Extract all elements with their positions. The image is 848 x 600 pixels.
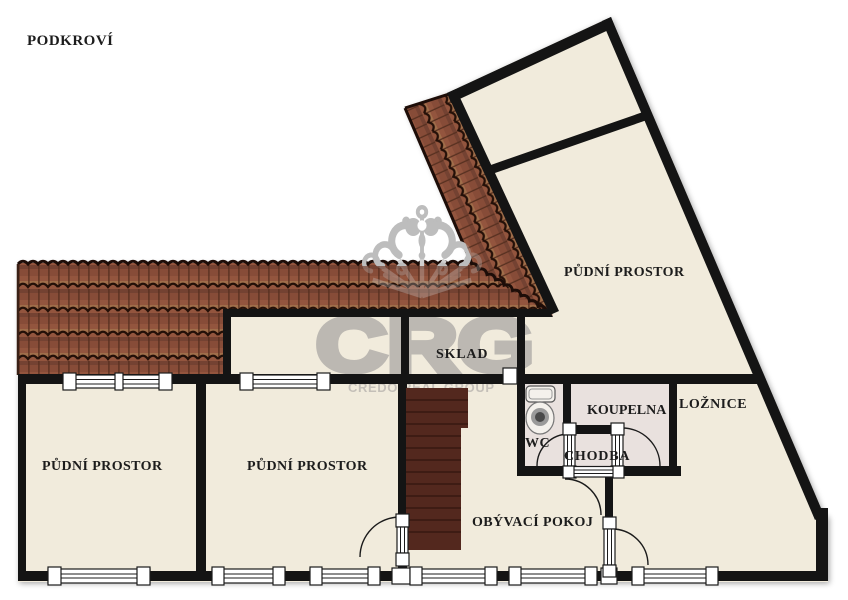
svg-text:PŮDNÍ PROSTOR: PŮDNÍ PROSTOR bbox=[564, 263, 685, 280]
svg-text:KOUPELNA: KOUPELNA bbox=[587, 403, 667, 418]
svg-text:PODKROVÍ: PODKROVÍ bbox=[27, 32, 114, 49]
svg-text:SKLAD: SKLAD bbox=[436, 347, 488, 362]
svg-text:PŮDNÍ PROSTOR: PŮDNÍ PROSTOR bbox=[247, 457, 368, 474]
svg-text:OBÝVACÍ POKOJ: OBÝVACÍ POKOJ bbox=[472, 513, 593, 530]
svg-text:CHODBA: CHODBA bbox=[564, 449, 630, 464]
svg-text:WC: WC bbox=[525, 436, 550, 451]
svg-text:PŮDNÍ PROSTOR: PŮDNÍ PROSTOR bbox=[42, 457, 163, 474]
svg-text:LOŽNICE: LOŽNICE bbox=[679, 395, 747, 412]
